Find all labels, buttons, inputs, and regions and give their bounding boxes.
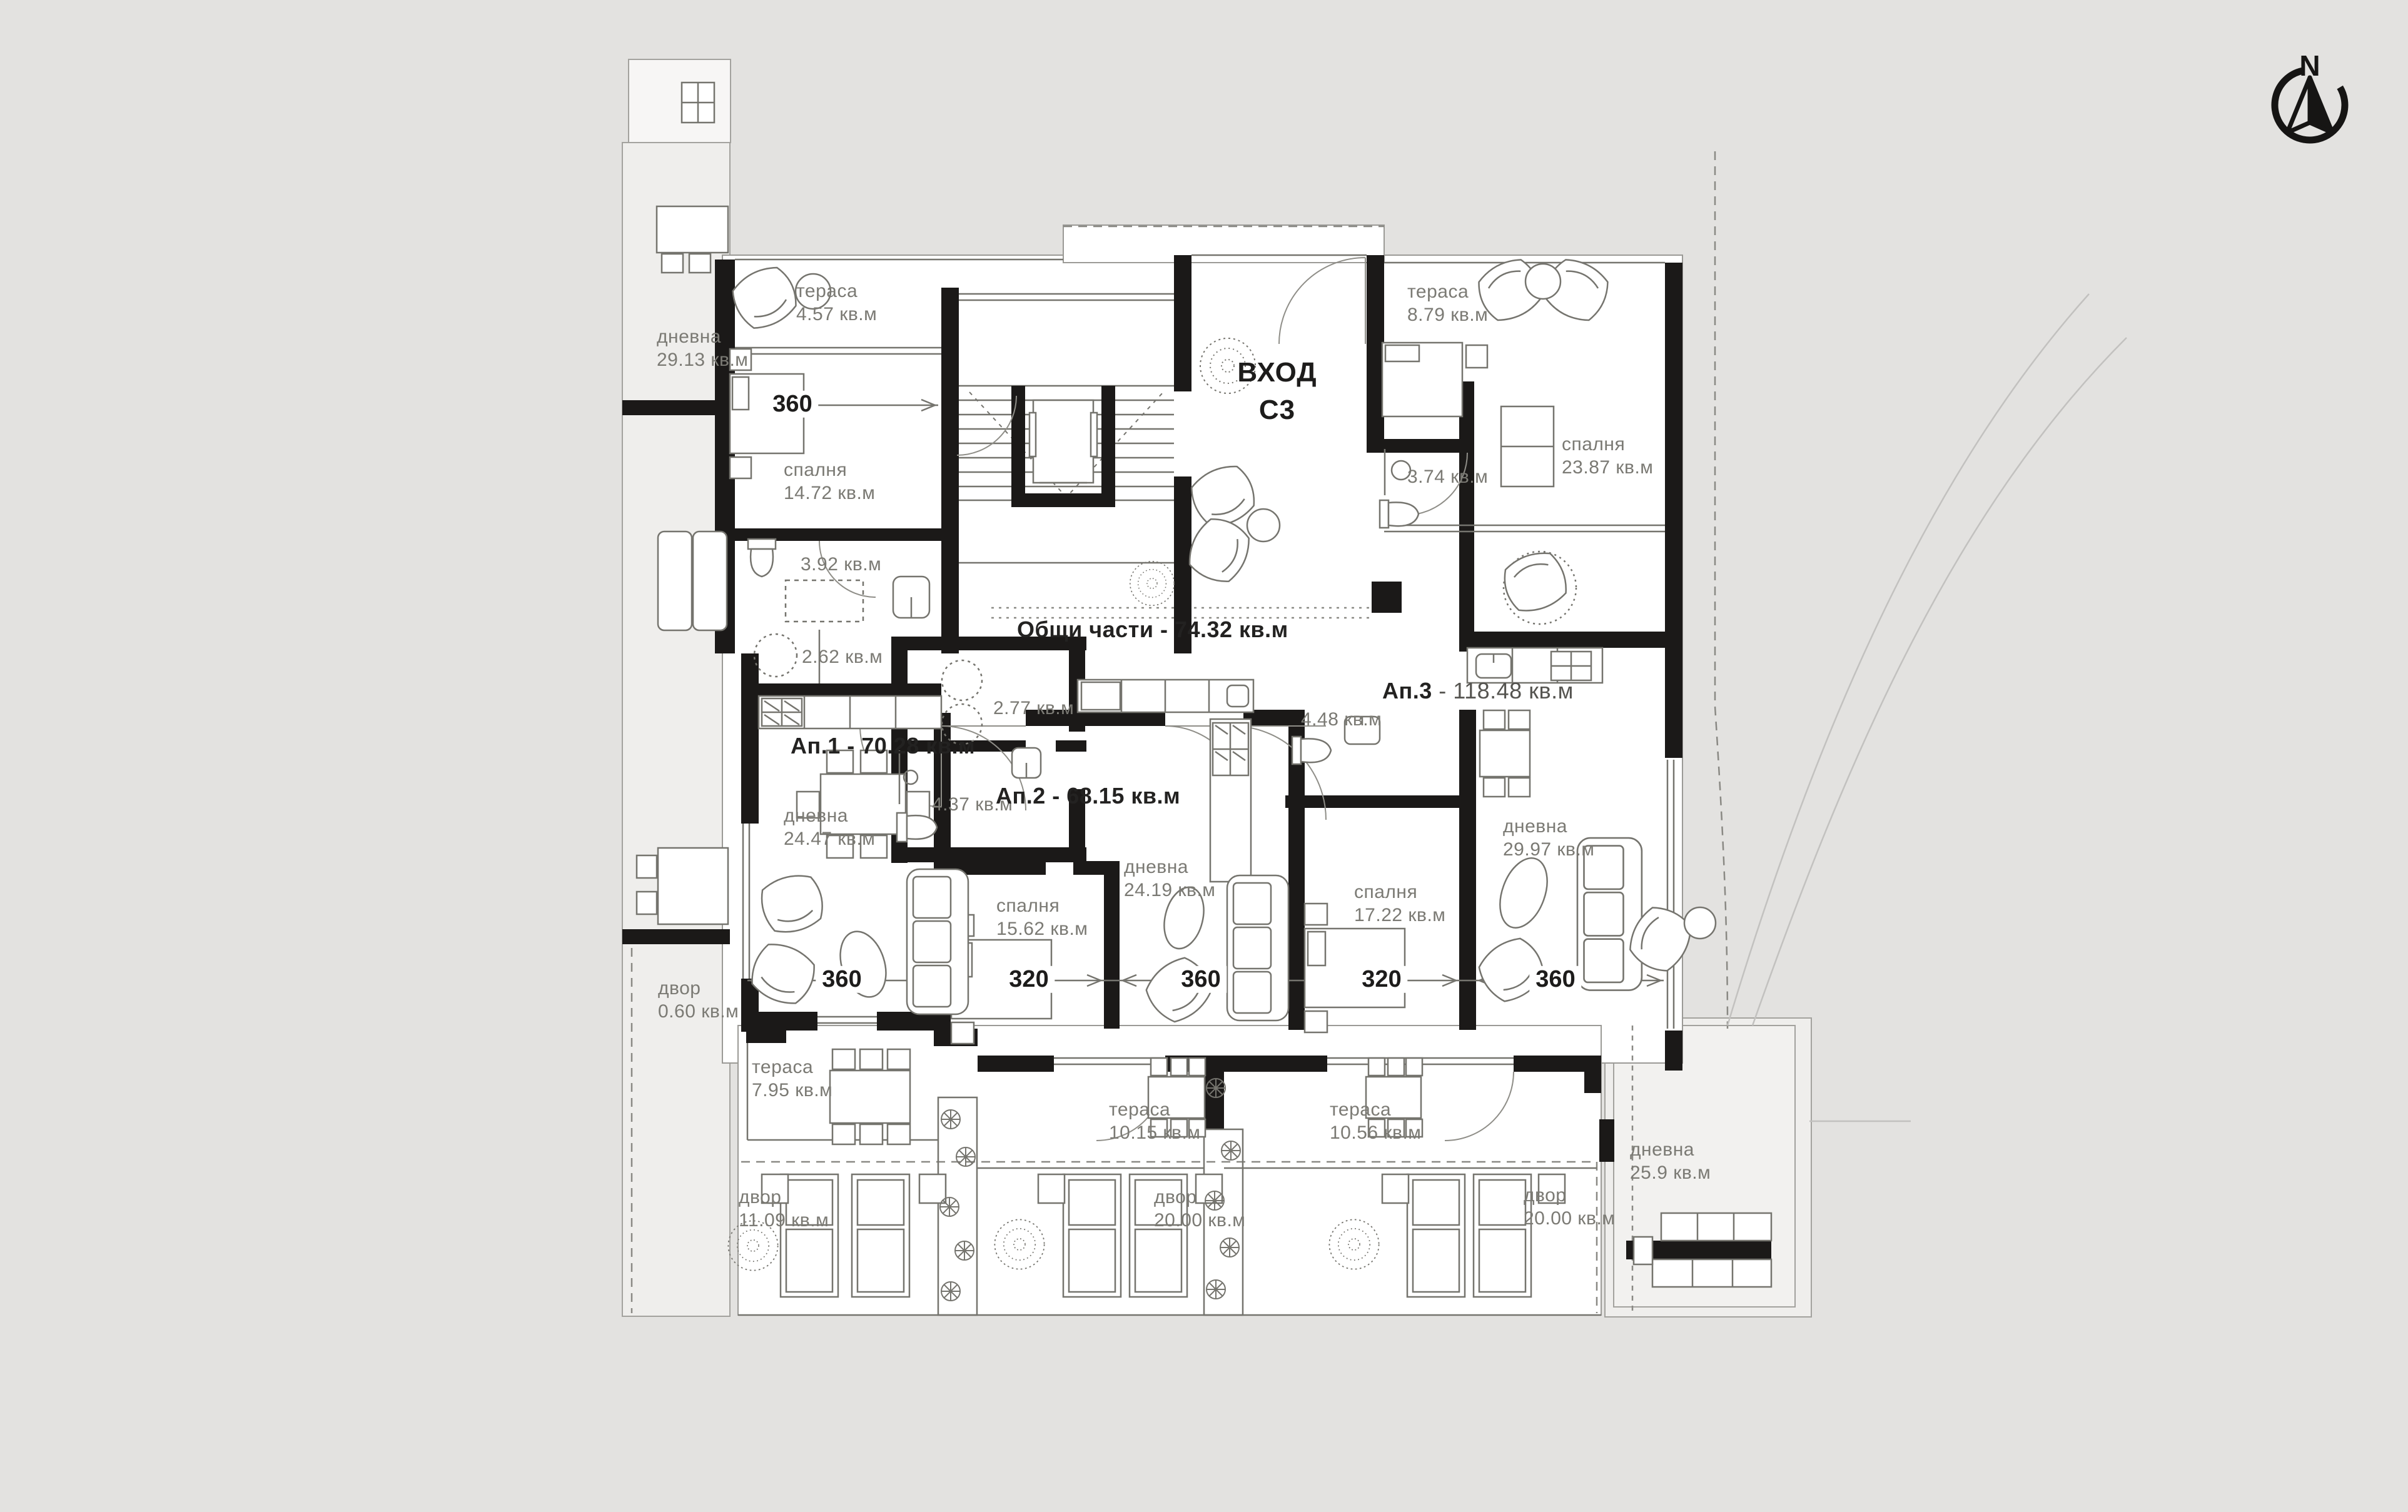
label-terrace-7-95-line-1: 7.95 кв.м [752, 1079, 832, 1102]
label-spalnya-17-22: спалня17.22 кв.м [1354, 880, 1445, 927]
label-dvor-0-60: двор0.60 кв.м [658, 977, 739, 1023]
label-dnevna-24-19-line-0: дневна [1124, 855, 1215, 879]
dim-320-ap2-bed-line-0: 320 [1009, 966, 1048, 993]
label-terrace-10-56-line-1: 10.56 кв.м [1330, 1121, 1421, 1144]
label-dvor-11-09: двор11.09 кв.м [739, 1186, 829, 1232]
label-ap3-title-rest: - 118.48 кв.м [1432, 678, 1574, 703]
label-ap1-title: Ап.1 - 70.28 кв.м [791, 733, 975, 759]
label-spalnya-15-62-line-0: спалня [996, 894, 1088, 917]
label-dvor-20-00-a-line-1: 20.00 кв.м [1154, 1209, 1245, 1232]
label-terrace-10-56: тераса10.56 кв.м [1330, 1098, 1421, 1144]
label-closet-2-62: 2.62 кв.м [802, 645, 883, 668]
label-dnevna-24-19-line-1: 24.19 кв.м [1124, 879, 1215, 902]
labels-layer: тераса4.57 кв.мдневна29.13 кв.мспалня14.… [0, 0, 2408, 1512]
label-dnevna-24-47-line-0: дневна [784, 804, 875, 827]
label-closet-2-62-line-0: 2.62 кв.м [802, 645, 883, 668]
label-dnevna-25-9-line-0: дневна [1630, 1138, 1711, 1161]
dim-360-ap3: 360 [1529, 966, 1581, 993]
label-bath-4-48-line-0: 4.48 кв.м [1301, 708, 1382, 731]
label-dvor-20-00-b-line-1: 20.00 кв.м [1524, 1207, 1615, 1230]
label-spalnya-17-22-line-0: спалня [1354, 880, 1445, 904]
label-spalnya-23-87-line-1: 23.87 кв.м [1562, 456, 1653, 479]
label-dnevna-29-97-line-1: 29.97 кв.м [1503, 838, 1594, 861]
label-bath-3-74: 3.74 кв.м [1407, 465, 1488, 488]
north-compass-label: N [2299, 49, 2320, 83]
label-bath-3-92-line-0: 3.92 кв.м [801, 553, 881, 576]
label-dnevna-29-13: дневна29.13 кв.м [657, 325, 748, 371]
label-terrace-4-57-line-0: тераса [796, 280, 877, 303]
dim-360-top: 360 [766, 391, 818, 418]
label-common-areas: Общи части - 74.32 кв.м [1017, 617, 1288, 643]
label-terrace-4-57: тераса4.57 кв.м [796, 280, 877, 326]
label-dvor-20-00-b: двор20.00 кв.м [1524, 1184, 1615, 1230]
label-ap1-title-bold: Ап.1 - 70.28 кв.м [791, 733, 975, 759]
label-terrace-10-15: тераса10.15 кв.м [1109, 1098, 1200, 1144]
dim-360-ap2-line-0: 360 [1181, 966, 1220, 993]
label-dvor-20-00-a: двор20.00 кв.м [1154, 1186, 1245, 1232]
label-spalnya-14-72-line-0: спалня [784, 458, 875, 481]
label-dnevna-25-9-line-1: 25.9 кв.м [1630, 1161, 1711, 1184]
label-bath-3-74-line-0: 3.74 кв.м [1407, 465, 1488, 488]
label-spalnya-23-87-line-0: спалня [1562, 433, 1653, 456]
label-dnevna-24-19: дневна24.19 кв.м [1124, 855, 1215, 902]
dim-360-ap3-line-0: 360 [1535, 966, 1575, 993]
label-dnevna-29-13-line-1: 29.13 кв.м [657, 348, 748, 371]
label-dnevna-24-47-line-1: 24.47 кв.м [784, 827, 875, 850]
label-dnevna-25-9: дневна25.9 кв.м [1630, 1138, 1711, 1184]
label-spalnya-14-72: спалня14.72 кв.м [784, 458, 875, 505]
label-spalnya-14-72-line-1: 14.72 кв.м [784, 481, 875, 505]
label-dvor-0-60-line-0: двор [658, 977, 739, 1000]
label-entrance: ВХОДС3 [1237, 354, 1317, 429]
label-ap2-title-bold: Ап.2 - 68.15 кв.м [996, 783, 1180, 809]
label-common-areas-bold: Общи части - 74.32 кв.м [1017, 617, 1288, 642]
label-ap3-title-bold: Ап.3 [1382, 678, 1432, 703]
label-dvor-0-60-line-1: 0.60 кв.м [658, 1000, 739, 1023]
label-dvor-20-00-b-line-0: двор [1524, 1184, 1615, 1207]
label-ap2-title: Ап.2 - 68.15 кв.м [996, 783, 1180, 809]
label-ap3-title: Ап.3 - 118.48 кв.м [1382, 678, 1574, 704]
label-spalnya-23-87: спалня23.87 кв.м [1562, 433, 1653, 479]
label-bath-2-77: 2.77 кв.м [993, 697, 1074, 720]
label-terrace-10-15-line-1: 10.15 кв.м [1109, 1121, 1200, 1144]
label-bath-4-48: 4.48 кв.м [1301, 708, 1382, 731]
label-dvor-11-09-line-0: двор [739, 1186, 829, 1209]
dim-320-ap2-bed: 320 [1003, 966, 1055, 993]
dim-360-ap1: 360 [816, 966, 868, 993]
dim-360-ap1-line-0: 360 [822, 966, 861, 993]
label-terrace-7-95-line-0: тераса [752, 1056, 832, 1079]
label-terrace-7-95: тераса7.95 кв.м [752, 1056, 832, 1102]
label-dvor-20-00-a-line-0: двор [1154, 1186, 1245, 1209]
label-dnevna-29-97-line-0: дневна [1503, 815, 1594, 838]
dim-360-ap2: 360 [1175, 966, 1227, 993]
label-entrance-line-1: С3 [1237, 391, 1317, 429]
dim-360-top-line-0: 360 [772, 391, 812, 418]
dim-320-ap3-bed: 320 [1355, 966, 1407, 993]
label-terrace-8-79-line-1: 8.79 кв.м [1407, 303, 1488, 326]
dim-320-ap3-bed-line-0: 320 [1362, 966, 1401, 993]
label-terrace-8-79-line-0: тераса [1407, 280, 1488, 303]
label-dnevna-29-13-line-0: дневна [657, 325, 748, 348]
label-terrace-10-15-line-0: тераса [1109, 1098, 1200, 1121]
label-bath-3-92: 3.92 кв.м [801, 553, 881, 576]
label-terrace-8-79: тераса8.79 кв.м [1407, 280, 1488, 326]
label-terrace-4-57-line-1: 4.57 кв.м [796, 303, 877, 326]
label-dnevna-29-97: дневна29.97 кв.м [1503, 815, 1594, 861]
label-spalnya-17-22-line-1: 17.22 кв.м [1354, 904, 1445, 927]
label-bath-2-77-line-0: 2.77 кв.м [993, 697, 1074, 720]
label-terrace-10-56-line-0: тераса [1330, 1098, 1421, 1121]
label-entrance-line-0: ВХОД [1237, 354, 1317, 391]
floor-plan-page: тераса4.57 кв.мдневна29.13 кв.мспалня14.… [0, 0, 2408, 1512]
label-spalnya-15-62-line-1: 15.62 кв.м [996, 917, 1088, 940]
label-dvor-11-09-line-1: 11.09 кв.м [739, 1209, 829, 1232]
label-spalnya-15-62: спалня15.62 кв.м [996, 894, 1088, 940]
label-dnevna-24-47: дневна24.47 кв.м [784, 804, 875, 850]
